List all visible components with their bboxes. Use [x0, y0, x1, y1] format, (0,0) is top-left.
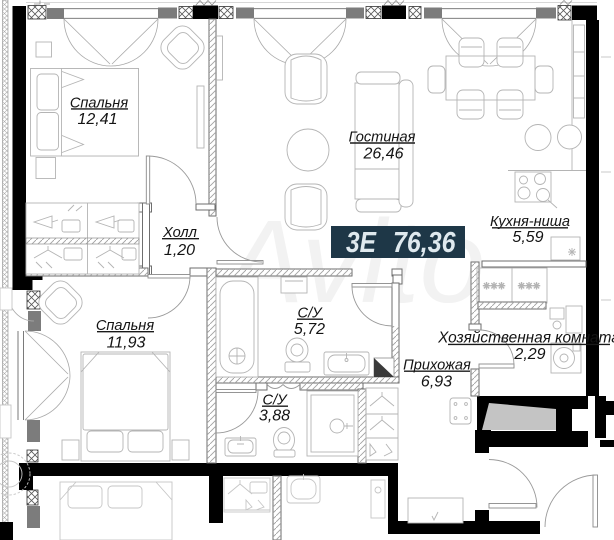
svg-text:5,72: 5,72: [294, 321, 325, 338]
svg-text:12,41: 12,41: [77, 111, 117, 128]
svg-text:11,93: 11,93: [107, 335, 146, 352]
svg-text:3,88: 3,88: [259, 408, 290, 425]
svg-text:2,29: 2,29: [513, 346, 545, 363]
svg-text:6,93: 6,93: [421, 374, 452, 391]
svg-text:26,46: 26,46: [362, 146, 403, 163]
svg-text:✳✳✳: ✳✳✳: [483, 281, 506, 291]
svg-text:3Е: 3Е: [346, 227, 377, 259]
svg-text:5,59: 5,59: [512, 229, 543, 246]
svg-text:76,36: 76,36: [393, 227, 456, 259]
svg-text:✳✳✳: ✳✳✳: [518, 281, 541, 291]
svg-text:1,20: 1,20: [164, 242, 195, 259]
